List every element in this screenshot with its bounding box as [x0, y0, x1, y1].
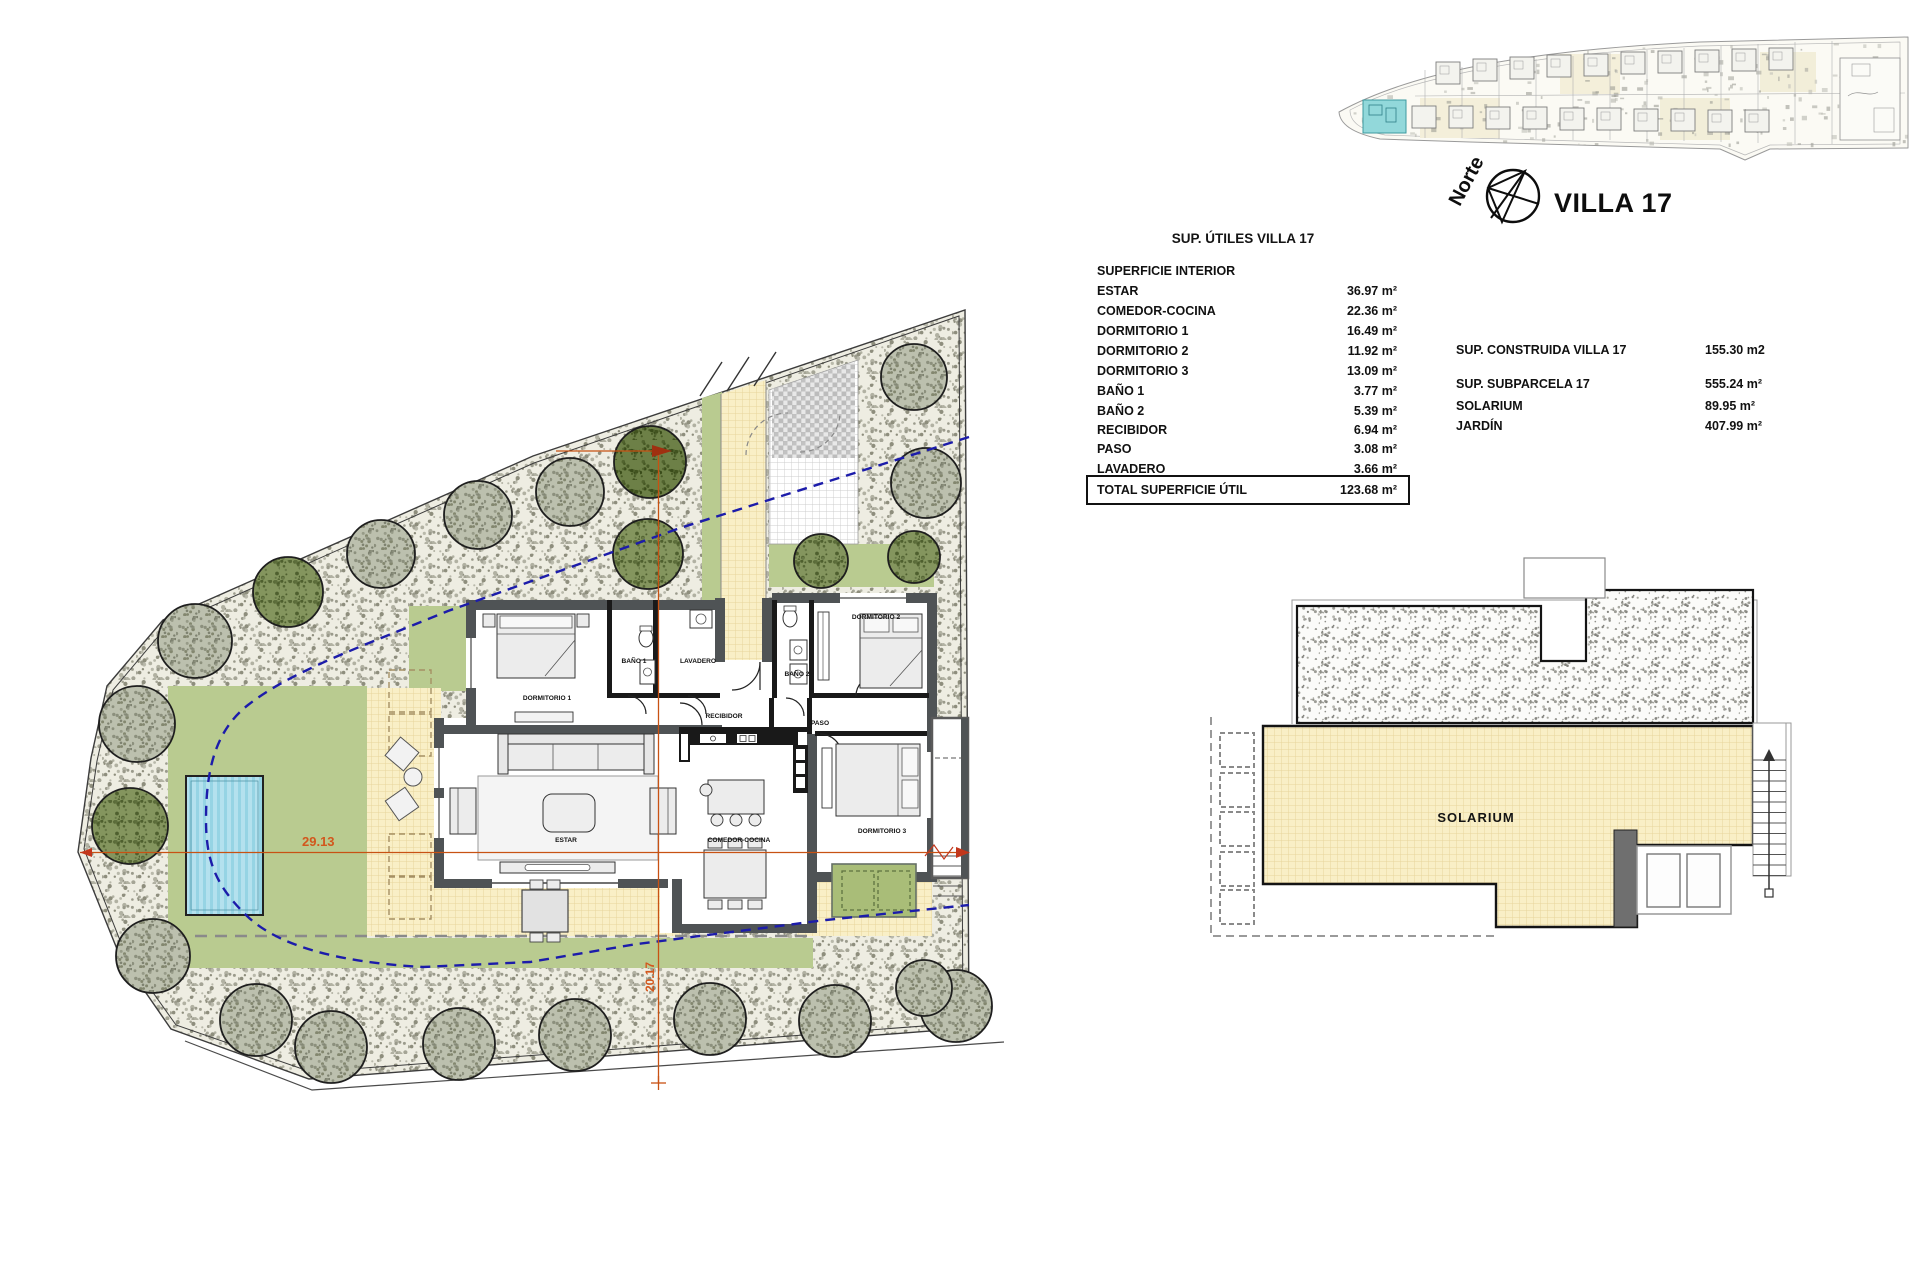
svg-text:123.68 m²: 123.68 m² — [1340, 483, 1397, 497]
svg-text:BAÑO 1: BAÑO 1 — [622, 656, 647, 665]
svg-text:3.08 m²: 3.08 m² — [1354, 442, 1397, 456]
svg-text:29.13: 29.13 — [302, 834, 335, 849]
svg-text:VILLA 17: VILLA 17 — [1554, 188, 1673, 218]
svg-text:16.49 m²: 16.49 m² — [1347, 324, 1397, 338]
svg-text:PASO: PASO — [1097, 442, 1132, 456]
svg-text:RECIBIDOR: RECIBIDOR — [706, 713, 743, 720]
svg-text:BAÑO 2: BAÑO 2 — [1097, 403, 1144, 418]
svg-text:COMEDOR-COCINA: COMEDOR-COCINA — [1097, 304, 1216, 318]
svg-text:SOLARIUM: SOLARIUM — [1456, 399, 1523, 413]
svg-text:ESTAR: ESTAR — [1097, 284, 1138, 298]
svg-text:LAVADERO: LAVADERO — [680, 658, 716, 665]
svg-text:89.95 m²: 89.95 m² — [1705, 399, 1755, 413]
svg-text:DORMITORIO 3: DORMITORIO 3 — [1097, 364, 1188, 378]
svg-text:DORMITORIO 1: DORMITORIO 1 — [523, 695, 572, 702]
svg-text:COMEDOR-COCINA: COMEDOR-COCINA — [708, 837, 771, 844]
svg-text:3.66 m²: 3.66 m² — [1354, 462, 1397, 476]
svg-text:22.36 m²: 22.36 m² — [1347, 304, 1397, 318]
svg-text:DORMITORIO 3: DORMITORIO 3 — [858, 828, 907, 835]
svg-text:6.94 m²: 6.94 m² — [1354, 423, 1397, 437]
svg-text:20.17: 20.17 — [643, 962, 657, 992]
svg-text:155.30 m2: 155.30 m2 — [1705, 343, 1765, 357]
svg-text:36.97 m²: 36.97 m² — [1347, 284, 1397, 298]
svg-text:407.99 m²: 407.99 m² — [1705, 419, 1762, 433]
svg-text:BAÑO 2: BAÑO 2 — [785, 669, 810, 678]
svg-text:555.24 m²: 555.24 m² — [1705, 377, 1762, 391]
svg-text:DORMITORIO 1: DORMITORIO 1 — [1097, 324, 1188, 338]
svg-text:RECIBIDOR: RECIBIDOR — [1097, 423, 1167, 437]
svg-text:SOLARIUM: SOLARIUM — [1437, 810, 1514, 825]
svg-text:5.39 m²: 5.39 m² — [1354, 404, 1397, 418]
svg-text:SUP. ÚTILES VILLA 17: SUP. ÚTILES VILLA 17 — [1172, 231, 1315, 246]
svg-text:TOTAL SUPERFICIE ÚTIL: TOTAL SUPERFICIE ÚTIL — [1097, 482, 1247, 497]
svg-text:DORMITORIO 2: DORMITORIO 2 — [852, 614, 901, 621]
svg-text:SUP. CONSTRUIDA VILLA 17: SUP. CONSTRUIDA VILLA 17 — [1456, 343, 1626, 357]
svg-text:13.09 m²: 13.09 m² — [1347, 364, 1397, 378]
svg-text:ESTAR: ESTAR — [555, 837, 577, 844]
svg-text:JARDÍN: JARDÍN — [1456, 418, 1503, 433]
svg-text:SUP. SUBPARCELA 17: SUP. SUBPARCELA 17 — [1456, 377, 1590, 391]
svg-text:11.92 m²: 11.92 m² — [1348, 344, 1397, 358]
svg-text:LAVADERO: LAVADERO — [1097, 462, 1166, 476]
svg-text:BAÑO 1: BAÑO 1 — [1097, 383, 1144, 398]
svg-text:3.77 m²: 3.77 m² — [1354, 384, 1397, 398]
svg-text:PASO: PASO — [811, 720, 829, 727]
svg-text:SUPERFICIE INTERIOR: SUPERFICIE INTERIOR — [1097, 264, 1235, 278]
svg-text:DORMITORIO 2: DORMITORIO 2 — [1097, 344, 1188, 358]
